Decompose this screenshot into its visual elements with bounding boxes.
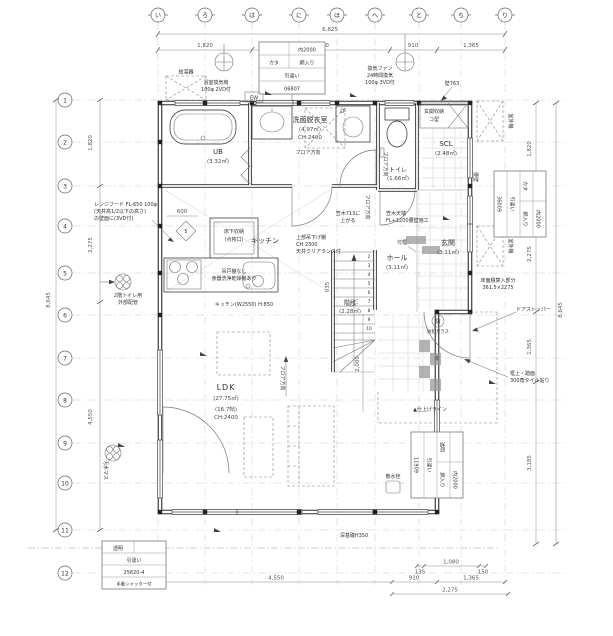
note-kitchen-spec: キッチン(W2550) H:850 (215, 302, 273, 308)
room-ldk-ch: CH:2400 (214, 415, 238, 421)
note-yukashita-1: 床下収納 (224, 228, 244, 235)
floor-plan-drawing: い ろ は に ほ へ と ち り 1 2 3 4 5 6 7 8 9 10 1… (0, 0, 613, 636)
grid-column-bubbles: い ろ は に ほ へ と ち り (148, 8, 515, 22)
dim-top-total: 6,825 (322, 27, 338, 33)
toilet-fixture (380, 108, 409, 157)
window-schedule-bottom: 内2000 透明 網入り 引違い 11909 (411, 432, 463, 498)
window-top-senmen (256, 100, 330, 106)
note-range-2: (天井高1/2以下の高さ) (94, 208, 146, 215)
note-tile-2: 300角タイル貼り (510, 377, 550, 384)
bath-fan-symbol (215, 44, 233, 71)
dim-left-3: 4,550 (88, 409, 94, 425)
window-bottom-ldk-1 (172, 509, 302, 515)
dim-right-4: 3,185 (527, 455, 533, 471)
grid-row-label-9: 10 (61, 480, 69, 487)
sched-bottom-size: 内2000 (452, 471, 459, 489)
grid-col-label-5: へ (372, 12, 378, 19)
note-fukiso: 深基礎H350 (340, 532, 368, 539)
note-kanki-2: 24時間換気 (367, 72, 393, 79)
note-tile-1: 框上・踏面 (510, 370, 535, 377)
window-left-ldk-2 (157, 440, 163, 498)
note-sansui: 散水栓 (385, 473, 400, 480)
window-left-ldk-1 (157, 350, 163, 415)
note-menseki-2: 361.5×2275 (482, 285, 513, 291)
sched-top-glass1: カタ (269, 60, 279, 67)
sched-right-code: 36009 (496, 196, 502, 212)
room-senmen-ch: CH:2400 (298, 135, 322, 141)
dimensions-right: 1,820 2,275 1,365 3,185 8,645 (527, 101, 564, 546)
sched-left-code: 25620-4 (124, 570, 145, 576)
grid-col-label-0: い (155, 12, 161, 19)
room-ldk-area: (27.75㎡) (213, 394, 239, 402)
note-doorstop: ドアストッパー (516, 307, 551, 313)
room-scl-area: (2.48㎡) (435, 149, 457, 157)
dim-bot-2: 910 (409, 576, 420, 582)
sched-bottom-glass2: 網入り (439, 472, 446, 487)
sched-left-glass: 透明 (113, 545, 123, 552)
note-osui: 汚水マス (102, 460, 109, 480)
note-range-1: レンジフード FL-650 100φ (94, 202, 158, 208)
note-shuno-1: 玄関収納 (424, 108, 444, 115)
note-tsukegamachi: 付框 (397, 239, 407, 246)
grid-row-label-1: 2 (63, 139, 67, 146)
dim-top-3: 910 (408, 43, 419, 49)
window-schedule-right: 内2000 カタ 網入り 引違い 36009 (494, 171, 546, 237)
grid-row-label-6: 7 (63, 355, 67, 362)
note-bath-fan-2: 100φ 2VD付 (201, 86, 231, 93)
door-entrance (424, 312, 470, 358)
grid-col-label-1: ろ (202, 12, 208, 19)
room-stairs-name: 階段 (344, 299, 356, 307)
kitchen-counter (164, 258, 278, 292)
note-floor-dir-1: フロア方向 (295, 149, 320, 156)
room-ub-name: UB (213, 148, 223, 156)
diamond-number: 5 (184, 229, 187, 235)
stair-step-6: 6 (368, 290, 371, 296)
room-hall-area: (3.11㎡) (386, 263, 408, 271)
grid-row-label-7: 8 (63, 397, 67, 404)
room-genkan-name: 玄関 (441, 238, 455, 247)
sched-top-glass2: 網入り (299, 60, 314, 67)
room-toilet-area: (1.66㎡) (387, 174, 409, 182)
doors (163, 148, 470, 473)
grid-row-label-10: 11 (61, 527, 69, 534)
genkan-step-stones (406, 236, 440, 254)
note-kanki-1: 換気ファン (367, 65, 392, 72)
grid-col-label-6: と (416, 12, 422, 19)
grid-row-label-11: 12 (61, 570, 69, 577)
window-right-genkan (467, 196, 473, 252)
dim-bot-1: 4,550 (268, 576, 284, 582)
note-agaru-1: 笠木713に (336, 210, 361, 217)
note-uwabu-3: 天井クリアランス付 (296, 248, 341, 255)
note-range-3: の壁面に(3VD付) (94, 215, 133, 222)
room-hall-name: ホール (387, 254, 408, 262)
grid-row-label-3: 4 (63, 223, 67, 230)
dim-bot-1080: 1,080 (443, 560, 459, 566)
note-kanki-3: 100φ 3VD付 (365, 79, 395, 86)
grid-row-bubbles: 1 2 3 4 5 6 7 8 9 10 11 12 (58, 93, 72, 580)
dimensions-top: 6,825 1,820 2,730 910 1,365 (156, 27, 507, 53)
note-bouhan: 防犯ガラス (427, 328, 449, 335)
sched-bottom-code: 11909 (413, 457, 419, 473)
stair-step-10: 10 (366, 326, 372, 332)
sched-top-code: 06807 (284, 87, 300, 93)
note-kasagi-1: 笠木天端 (386, 210, 406, 217)
sched-top-type: 引違い (284, 73, 299, 80)
room-kitchen-name: キッチン (251, 237, 279, 245)
note-floor-dir-4: フロア方向 (279, 365, 286, 390)
room-ub-area: (3.32㎡) (207, 157, 229, 165)
stair-step-7: 7 (368, 299, 371, 305)
sched-bottom-glass1: 透明 (439, 442, 446, 452)
sched-right-glass1: カタ (522, 181, 529, 191)
floor-plan-sheet: { "grid": { "cols": ["い","ろ","は","に","ほ"… (0, 0, 613, 636)
stair-step-9: 9 (368, 317, 371, 323)
manhole-1 (100, 274, 131, 290)
dim-top-4: 1,365 (463, 43, 479, 49)
sched-right-glass2: 網入り (522, 211, 529, 226)
note-bath-fan-1: 浴室換気扇 (203, 79, 228, 86)
window-schedule-left: 透明 引違い 25620-4 手動シャッター付 (102, 541, 166, 589)
dim-top-1: 1,820 (197, 43, 213, 49)
room-ldk-name: LDK (217, 383, 236, 392)
note-ep: EP (340, 109, 346, 115)
bathtub (170, 110, 236, 144)
grid-row-label-4: 5 (63, 270, 67, 277)
note-kasagi-2: FL+1200腰壁施工 (386, 217, 429, 224)
note-shiage: ▲仕上げライン (413, 406, 447, 413)
window-top-toilet (385, 100, 414, 106)
stair-step-8: 8 (368, 308, 371, 314)
grid-col-label-3: に (296, 12, 302, 19)
vanity-sink (252, 106, 292, 139)
stair-step-5: 5 (368, 281, 371, 287)
sched-left-shutter: 手動シャッター付 (116, 581, 152, 588)
note-haikan-2: 外部配管 (118, 299, 138, 306)
note-kabe763: 壁763 (445, 80, 460, 87)
door-hall-senmen (340, 150, 376, 186)
note-menseki-1: 床面積算入部分 (480, 277, 515, 284)
note-uwabu-1: 上部吊下げ棚 (296, 234, 326, 241)
dim-left-total: 8,645 (46, 292, 52, 308)
window-right-scl (467, 138, 473, 178)
stair-step-2: 2 (368, 254, 371, 260)
grid-col-label-8: り (502, 12, 508, 19)
dim-right-3: 1,365 (527, 339, 533, 355)
note-uwabu-2: CH 2300 (296, 242, 318, 248)
security-mark: 防 (435, 318, 440, 325)
sched-top-size: 内2000 (298, 47, 316, 54)
sched-left-type: 引違い (126, 557, 141, 564)
grid-col-label-4: ほ (334, 12, 340, 19)
note-agaru-2: 上がる (340, 217, 355, 224)
sched-bottom-type: 引違い (426, 457, 433, 472)
stair-step-4: 4 (368, 272, 371, 278)
dim-right-total: 8,645 (558, 302, 564, 318)
room-ldk-tatami: (16.7帖) (215, 405, 237, 413)
room-senmen-area: (4.97㎡) (299, 125, 321, 133)
room-toilet-name: トイレ (389, 167, 407, 174)
manhole-2 (105, 445, 121, 461)
dim-left-1: 1,820 (88, 135, 94, 151)
sched-right-type: 引違い (509, 196, 516, 211)
dim-right-1: 1,820 (527, 141, 533, 157)
construction-grid (72, 22, 565, 585)
grid-row-label-0: 1 (63, 97, 67, 104)
stair-step-3: 3 (368, 263, 371, 269)
grid-row-label-5: 6 (63, 312, 67, 319)
grid-row-label-2: 3 (63, 183, 67, 190)
outdoor-unit-label-1: 室外機 (507, 113, 514, 128)
dim-bot-3: 1,365 (463, 576, 479, 582)
note-yukashita-2: (点検口) (225, 236, 244, 243)
note-kyutoki: 給湯器 (178, 69, 193, 76)
room-stairs-area: (2.28㎡) (339, 307, 361, 315)
window-top-ub (175, 100, 240, 106)
room-genkan-area: (3.11㎡) (437, 248, 459, 256)
dim-right-2: 2,275 (527, 246, 533, 262)
vent-fan-symbol (396, 34, 414, 71)
note-shuno-2: コ型 (429, 116, 439, 123)
outdoor-unit-label-2: 室外機 (507, 238, 514, 253)
dim-left-2: 2,275 (88, 237, 94, 253)
sched-right-size: 内2000 (535, 210, 542, 228)
grid-col-label-2: は (249, 12, 255, 19)
dim-bot-4: 2,275 (442, 588, 458, 594)
ew-label: EW (250, 96, 258, 102)
dim-porch-2000: 2,000 (355, 356, 361, 372)
dim-bot-150: 150 (478, 570, 489, 576)
grid-row-label-8: 9 (63, 440, 67, 447)
room-scl-name: SCL (439, 140, 452, 148)
dim-kitchen-600: 600 (177, 209, 188, 215)
dimensions-bottom: 135 1,080 150 4,550 910 1,365 2,275 (158, 560, 510, 597)
note-koshikabe: 腰壁 (472, 172, 479, 182)
note-tsurido-1: 吊戸棚なし (221, 268, 246, 275)
note-floor-dir-2: フロア方向 (382, 151, 389, 176)
note-floor-dir-3: フロア方向 (364, 194, 371, 219)
door-kitchen-senmen (292, 186, 332, 226)
grid-col-label-7: ち (458, 12, 464, 19)
water-heater (166, 76, 206, 100)
note-tsurido-2: 食器洗浄乾燥機あり (211, 275, 256, 282)
window-schedule-top: 内2000 カタ 網入り 引違い 06807 (259, 42, 325, 100)
note-haikan-1: 2階トイレ用 (114, 292, 142, 299)
room-senmen-name: 洗面脱衣室 (293, 115, 328, 124)
